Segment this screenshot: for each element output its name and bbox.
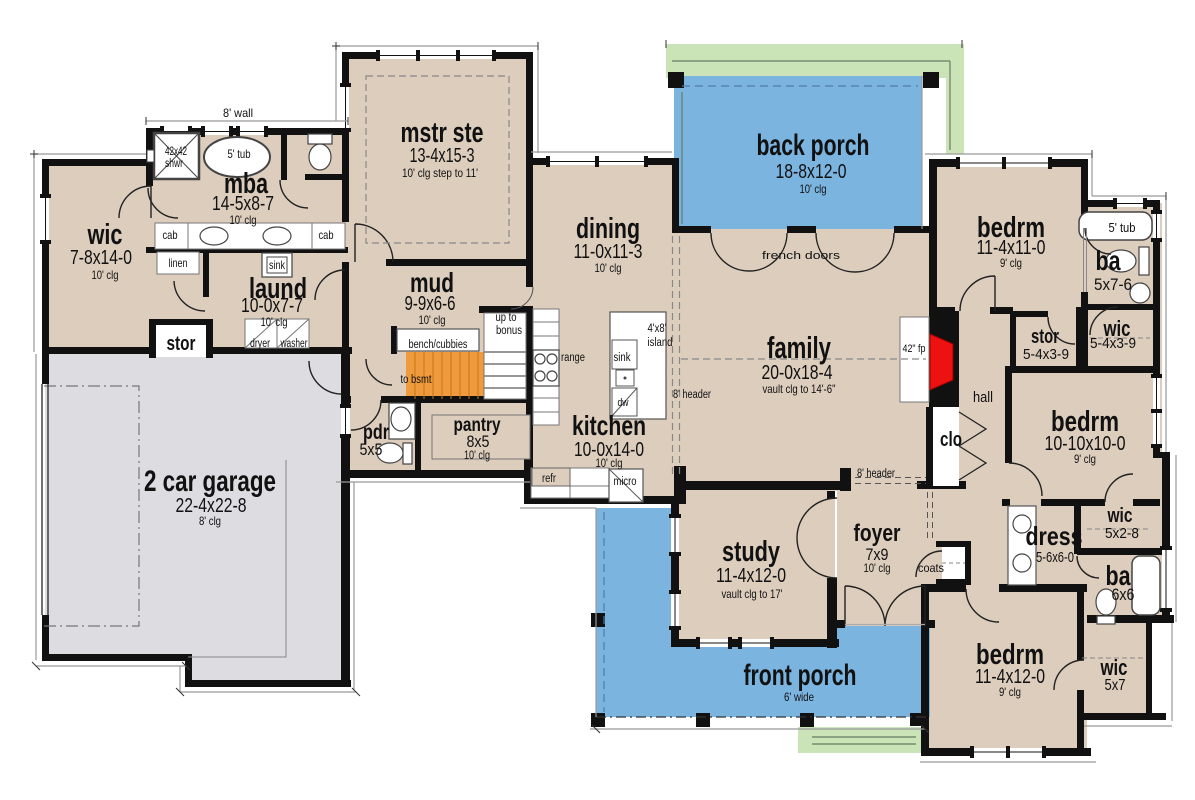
svg-text:10' clg: 10' clg <box>419 313 446 327</box>
svg-text:6x6: 6x6 <box>1112 585 1135 604</box>
svg-text:8' wall: 8' wall <box>223 106 253 120</box>
svg-text:8x5: 8x5 <box>467 432 490 451</box>
svg-text:kitchen: kitchen <box>572 410 646 441</box>
svg-text:8' header: 8' header <box>857 468 895 480</box>
svg-text:cab: cab <box>319 228 334 242</box>
svg-text:5x7-6: 5x7-6 <box>1094 275 1132 294</box>
svg-text:to bsmt: to bsmt <box>401 374 433 386</box>
svg-text:stor: stor <box>1031 326 1059 348</box>
svg-text:up to: up to <box>496 312 517 324</box>
svg-text:10-0x7-7: 10-0x7-7 <box>241 294 303 317</box>
svg-text:5-6x6-0: 5-6x6-0 <box>1036 549 1074 566</box>
svg-text:20-0x18-4: 20-0x18-4 <box>762 361 833 384</box>
svg-text:10' clg: 10' clg <box>596 456 623 470</box>
svg-text:range: range <box>561 352 585 364</box>
svg-text:10' clg: 10' clg <box>261 315 288 329</box>
svg-text:family: family <box>767 330 832 365</box>
svg-text:42" fp: 42" fp <box>903 343 926 355</box>
svg-text:8' header: 8' header <box>673 389 711 401</box>
svg-text:10' clg: 10' clg <box>864 561 891 575</box>
svg-text:9' clg: 9' clg <box>1000 256 1022 270</box>
svg-text:front porch: front porch <box>744 659 857 692</box>
svg-text:5x2-8: 5x2-8 <box>1105 525 1139 542</box>
svg-text:bench/cubbies: bench/cubbies <box>409 339 468 351</box>
svg-text:7-8x14-0: 7-8x14-0 <box>70 246 132 269</box>
svg-text:french doors: french doors <box>762 250 841 262</box>
svg-text:14-5x8-7: 14-5x8-7 <box>212 192 274 215</box>
svg-text:8' clg: 8' clg <box>199 514 221 528</box>
svg-text:vault clg to 17': vault clg to 17' <box>722 587 783 601</box>
svg-text:ba: ba <box>1096 245 1122 276</box>
svg-text:5-4x3-9: 5-4x3-9 <box>1090 335 1136 352</box>
svg-text:5x7: 5x7 <box>1105 677 1126 694</box>
svg-text:bonus: bonus <box>496 325 522 337</box>
svg-text:5' tub: 5' tub <box>1109 220 1136 235</box>
svg-text:10' clg step to 11': 10' clg step to 11' <box>402 166 478 180</box>
svg-text:hall: hall <box>973 389 993 406</box>
svg-text:5x5: 5x5 <box>360 440 383 459</box>
svg-text:5-4x3-9: 5-4x3-9 <box>1023 346 1069 363</box>
svg-text:11-0x11-3: 11-0x11-3 <box>574 240 643 263</box>
svg-text:18-8x12-0: 18-8x12-0 <box>776 160 847 183</box>
svg-text:dryer: dryer <box>250 338 270 350</box>
svg-text:washer: washer <box>280 338 308 350</box>
svg-text:4'x8': 4'x8' <box>648 323 667 335</box>
svg-text:refr: refr <box>542 473 556 485</box>
svg-text:dress: dress <box>1026 521 1083 551</box>
svg-text:vault clg to 14'-6": vault clg to 14'-6" <box>763 382 836 396</box>
svg-text:micro: micro <box>614 476 637 488</box>
svg-text:10' clg: 10' clg <box>464 450 490 462</box>
svg-text:dw: dw <box>618 397 629 409</box>
svg-text:10' clg: 10' clg <box>92 268 119 282</box>
svg-text:sink: sink <box>614 352 631 364</box>
svg-text:9' clg: 9' clg <box>999 685 1021 699</box>
svg-text:wic: wic <box>1107 505 1133 527</box>
svg-text:11-4x12-0: 11-4x12-0 <box>716 564 786 587</box>
svg-text:cab: cab <box>163 228 178 242</box>
svg-text:10' clg: 10' clg <box>230 213 257 227</box>
svg-text:back porch: back porch <box>757 129 870 162</box>
svg-text:6' wide: 6' wide <box>784 690 814 704</box>
svg-text:coats: coats <box>918 561 944 575</box>
svg-text:5' tub: 5' tub <box>228 147 251 161</box>
svg-text:9-9x6-6: 9-9x6-6 <box>405 292 456 315</box>
svg-text:10' clg: 10' clg <box>595 261 622 275</box>
svg-text:clo: clo <box>940 429 962 451</box>
svg-text:10' clg: 10' clg <box>800 182 827 196</box>
svg-text:9' clg: 9' clg <box>1074 452 1096 466</box>
svg-text:42x42: 42x42 <box>165 146 187 158</box>
svg-text:shwr: shwr <box>165 158 183 170</box>
svg-text:sink: sink <box>269 258 286 272</box>
svg-text:island: island <box>648 337 673 349</box>
svg-text:foyer: foyer <box>854 520 901 547</box>
svg-text:13-4x15-3: 13-4x15-3 <box>410 144 475 167</box>
svg-text:linen: linen <box>169 256 188 270</box>
svg-text:stor: stor <box>167 333 196 355</box>
